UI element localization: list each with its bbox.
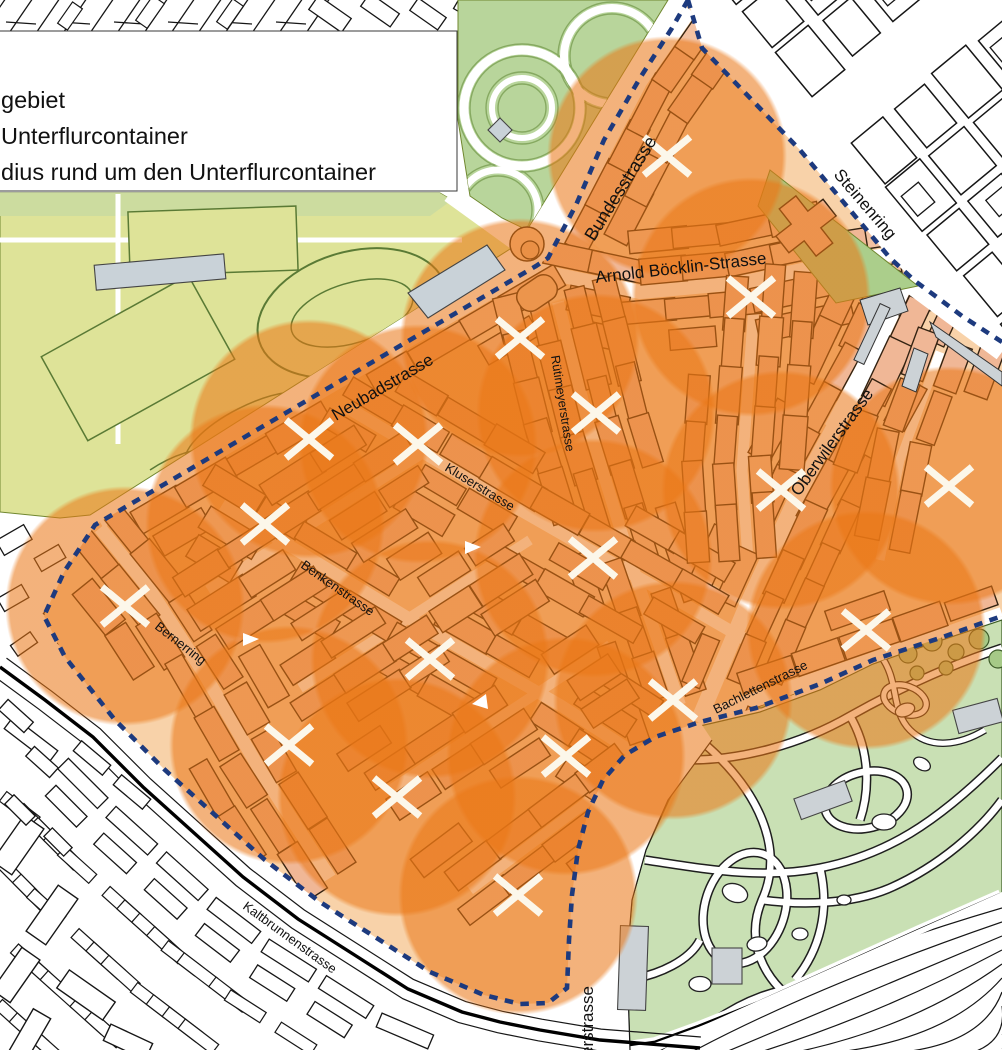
svg-text:dius rund um den Unterflurcont: dius rund um den Unterflurcontainer xyxy=(1,159,376,185)
svg-text:Unterflurcontainer: Unterflurcontainer xyxy=(1,123,188,149)
svg-text:erstrasse: erstrasse xyxy=(578,986,597,1050)
svg-text:gebiet: gebiet xyxy=(1,87,65,113)
